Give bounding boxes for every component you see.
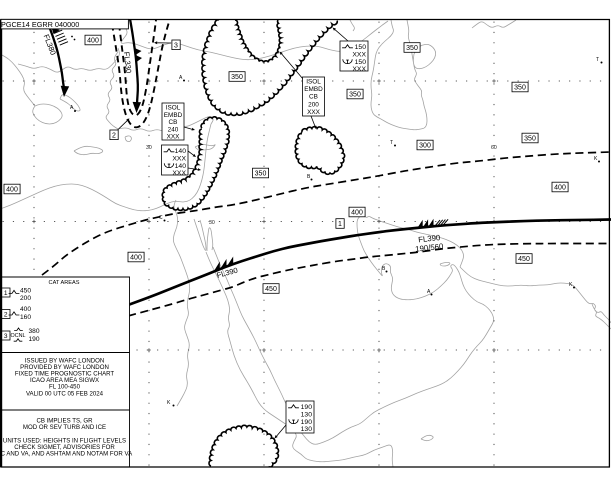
svg-text:350: 350 <box>514 85 526 92</box>
svg-text:EMBD: EMBD <box>164 112 183 119</box>
svg-text:3: 3 <box>174 42 178 49</box>
svg-text:30: 30 <box>146 145 152 151</box>
svg-text:190: 190 <box>301 404 313 411</box>
svg-text:2: 2 <box>112 132 116 139</box>
svg-text:350: 350 <box>406 45 418 52</box>
svg-text:140: 140 <box>175 163 187 170</box>
svg-text:160: 160 <box>20 314 31 321</box>
svg-text:350: 350 <box>255 171 267 178</box>
svg-text:400: 400 <box>6 187 18 194</box>
svg-text:450: 450 <box>20 288 31 295</box>
svg-text:ISOL: ISOL <box>306 79 321 86</box>
svg-text:XXX: XXX <box>167 134 181 141</box>
svg-text:MOD OR SEV TURB AND ICE: MOD OR SEV TURB AND ICE <box>23 424 106 431</box>
svg-text:1: 1 <box>4 290 8 297</box>
svg-text:200: 200 <box>20 295 31 302</box>
svg-text:190: 190 <box>301 419 313 426</box>
svg-text:400: 400 <box>554 185 566 192</box>
svg-text:PGCE14 EGRR 040000: PGCE14 EGRR 040000 <box>1 20 79 29</box>
svg-text:450: 450 <box>265 286 277 293</box>
svg-text:190: 190 <box>29 336 40 343</box>
svg-text:CB: CB <box>169 119 178 126</box>
svg-text:3: 3 <box>4 333 8 340</box>
svg-text:240: 240 <box>168 126 179 133</box>
svg-text:350: 350 <box>231 74 243 81</box>
svg-text:XXX: XXX <box>172 156 186 163</box>
svg-text:CAT AREAS: CAT AREAS <box>49 280 80 286</box>
svg-text:130: 130 <box>301 426 313 433</box>
svg-text:150: 150 <box>355 44 367 51</box>
svg-text:200: 200 <box>308 101 319 108</box>
svg-text:30: 30 <box>209 220 215 226</box>
svg-text:XXX: XXX <box>307 109 321 116</box>
svg-text:380: 380 <box>29 328 40 335</box>
svg-text:400: 400 <box>130 255 142 262</box>
svg-text:400: 400 <box>20 306 31 313</box>
svg-text:450: 450 <box>518 256 530 263</box>
svg-text:TC AND VA, AND ASHTAM AND NOTA: TC AND VA, AND ASHTAM AND NOTAM FOR VA <box>0 451 133 458</box>
svg-text:CB: CB <box>309 94 318 101</box>
svg-text:1: 1 <box>338 221 342 228</box>
svg-text:2: 2 <box>4 312 8 319</box>
svg-text:300: 300 <box>419 143 431 150</box>
svg-text:XXX: XXX <box>352 52 366 59</box>
svg-text:350: 350 <box>524 136 536 143</box>
svg-text:XXX: XXX <box>172 170 186 177</box>
svg-text:150: 150 <box>355 59 367 66</box>
svg-text:60: 60 <box>491 145 497 151</box>
svg-text:130: 130 <box>301 412 313 419</box>
svg-text:ISOL: ISOL <box>166 105 181 112</box>
svg-text:T: T <box>390 140 393 146</box>
svg-text:XXX: XXX <box>352 66 366 73</box>
svg-text:400: 400 <box>87 38 99 45</box>
svg-text:400: 400 <box>351 210 363 217</box>
svg-text:T: T <box>596 57 599 63</box>
svg-text:C: C <box>159 215 163 221</box>
svg-text:350: 350 <box>349 92 361 99</box>
svg-text:140: 140 <box>175 148 187 155</box>
svg-text:VALID 00 UTC 05 FEB 2024: VALID 00 UTC 05 FEB 2024 <box>26 390 104 397</box>
svg-text:EMBD: EMBD <box>304 86 323 93</box>
